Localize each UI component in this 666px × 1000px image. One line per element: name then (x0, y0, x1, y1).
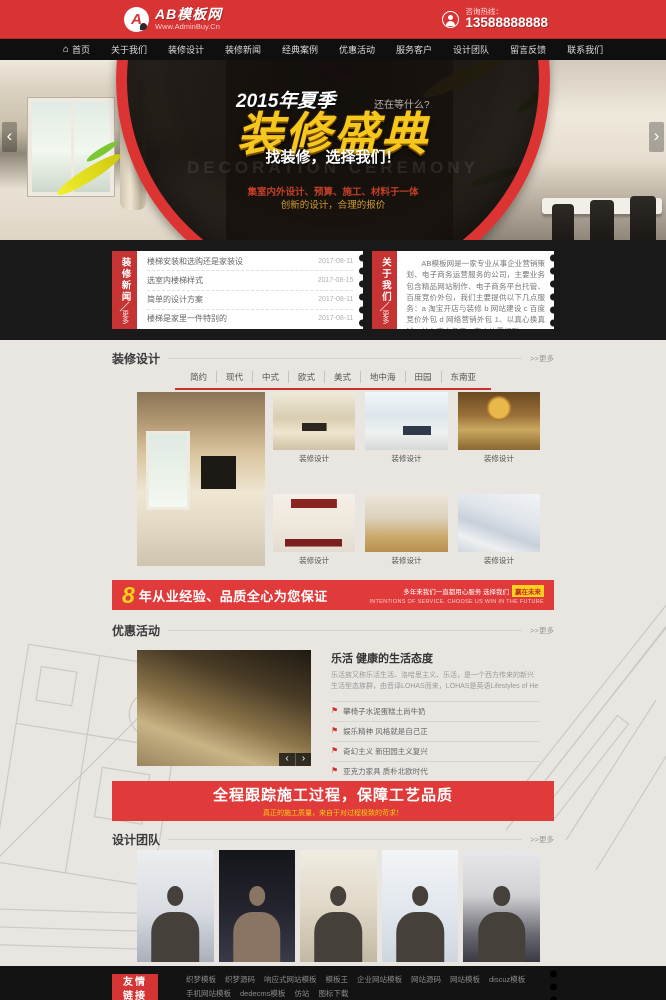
logo[interactable]: A AB模板网 Www.AdminBuy.Cn (124, 7, 222, 32)
offer-list-item[interactable]: ⚑ 娱乐精神 风格就是自己正 (331, 722, 540, 742)
offer-article-title[interactable]: 乐活 健康的生活态度 (331, 650, 540, 666)
experience-text: 年从业经验、品质全心为您保证 (139, 586, 328, 605)
friend-links: 织梦模板 织梦源码 响应式网站模板 模板王 企业网站模板 网站源码 网站模板 d… (186, 974, 546, 999)
gallery-item[interactable]: 装修设计 (458, 392, 540, 464)
about-tab-label: 关于我们 (378, 257, 392, 303)
about-text: AB模板网是一家专业从事企业营销策划、电子商务运营服务的公司，主要业务包含精品网… (397, 251, 554, 329)
person-silhouette (478, 886, 525, 962)
nav-item-design[interactable]: 装修设计 (157, 43, 214, 56)
nav-item-feedback[interactable]: 留言反馈 (500, 43, 557, 56)
footer-link[interactable]: dedecms模板 (240, 988, 285, 999)
footer-link[interactable]: 图标下载 (318, 988, 348, 999)
news-title: 简单的设计方案 (147, 294, 203, 305)
nav-item-contact[interactable]: 联系我们 (557, 43, 614, 56)
tab-pastoral[interactable]: 田园 (405, 371, 441, 383)
tab-european[interactable]: 欧式 (288, 371, 324, 383)
offer-list-item[interactable]: ⚑ 攀椅子水泥蛋糕土尚牛奶 (331, 702, 540, 722)
offer-list-item[interactable]: ⚑ 亚克力家具 质朴北欧时代 (331, 762, 540, 782)
logo-letter: A (131, 11, 142, 28)
carousel-next-icon[interactable]: › (649, 122, 664, 152)
footer-link[interactable]: 模板王 (326, 974, 349, 985)
perforation-decor (358, 252, 367, 328)
offer-prev-icon[interactable]: ‹ (279, 753, 295, 766)
footer-link[interactable]: 仿站 (294, 988, 309, 999)
hero-services-line: 集室内外设计、预算、施工、材料于一体 (0, 184, 666, 198)
offers-block: ‹ › 乐活 健康的生活态度 乐活族又称乐活生活、洛哈思主义、乐活，是一个西方传… (137, 650, 540, 768)
flag-icon: ⚑ (331, 747, 338, 755)
footer-link[interactable]: 织梦模板 (186, 974, 216, 985)
nav-item-clients[interactable]: 服务客户 (386, 43, 443, 56)
news-row[interactable]: 楼梯是家里一件特别的 2017-08-11 (147, 310, 353, 328)
person-silhouette (396, 886, 443, 962)
footer-link[interactable]: 织梦源码 (225, 974, 255, 985)
top-header: A AB模板网 Www.AdminBuy.Cn 咨询热线： 1358888888… (0, 0, 666, 38)
hotline-number: 13588888888 (465, 16, 548, 31)
news-date: 2017-08-11 (318, 258, 353, 265)
experience-years: 8 (122, 584, 135, 607)
hero-pricing-line: 创新的设计，合理的报价 (0, 197, 666, 211)
news-date: 2017-08-15 (318, 277, 354, 284)
news-panel: 装修新闻 更多 楼梯安装和选购还是家装设 2017-08-11 选室内楼梯样式 … (112, 251, 363, 329)
process-banner-subtitle: 真正的施工质量，来自于对过程极致的苛求！ (263, 808, 403, 818)
experience-banner: 8 年从业经验、品质全心为您保证 多年来我们一直都用心服务 选择我们 赢在未来 … (112, 580, 554, 610)
home-icon: ⌂ (63, 45, 69, 55)
offer-image[interactable]: ‹ › (137, 650, 311, 766)
footer-link[interactable]: 企业网站模板 (357, 974, 402, 985)
nav-item-offers[interactable]: 优惠活动 (329, 43, 386, 56)
offer-body: 乐活 健康的生活态度 乐活族又称乐活生活、洛哈思主义、乐活，是一个西方传来的新兴… (331, 650, 540, 768)
offer-article-text: 乐活族又称乐活生活、洛哈思主义、乐活，是一个西方传来的新兴生活型态族群，由音译L… (331, 671, 540, 693)
perforation-decor (549, 968, 558, 1000)
news-vertical-tab: 装修新闻 更多 (112, 251, 137, 329)
gallery-caption[interactable]: 装修设计 (365, 453, 447, 464)
footer-link[interactable]: 响应式网站模板 (264, 974, 317, 985)
experience-right: 多年来我们一直都用心服务 选择我们 赢在未来 INTENTIONS OF SER… (369, 585, 544, 605)
news-title: 楼梯安装和选购还是家装设 (147, 256, 243, 267)
tab-modern[interactable]: 现代 (216, 371, 252, 383)
news-date: 2017-08-11 (318, 296, 353, 303)
team-section-head: 设计团队 >>更多 (112, 831, 554, 848)
news-date: 2017-08-11 (318, 315, 353, 322)
logo-subtitle: Www.AdminBuy.Cn (155, 22, 222, 31)
divider-line (168, 630, 522, 631)
service-slogan-en: INTENTIONS OF SERVICE. CHOOSE US WIN IN … (369, 599, 544, 605)
process-banner-title: 全程跟踪施工过程，保障工艺品质 (213, 784, 453, 805)
footer-link[interactable]: 网站源码 (411, 974, 441, 985)
team-section-title: 设计团队 (112, 831, 160, 848)
gallery-caption[interactable]: 装修设计 (458, 555, 540, 566)
person-silhouette (315, 886, 362, 962)
main-nav: ⌂首页 关于我们 装修设计 装修新闻 经典案例 优惠活动 服务客户 设计团队 留… (0, 38, 666, 60)
offers-section-head: 优惠活动 >>更多 (112, 622, 554, 639)
process-banner: 全程跟踪施工过程，保障工艺品质 真正的施工质量，来自于对过程极致的苛求！ (112, 781, 554, 821)
nav-item-team[interactable]: 设计团队 (443, 43, 500, 56)
person-silhouette (152, 886, 199, 962)
design-section-head: 装修设计 >>更多 (112, 350, 554, 367)
team-photo[interactable] (219, 850, 296, 962)
gallery-item[interactable]: 装修设计 (365, 494, 447, 566)
flag-icon: ⚑ (331, 727, 338, 735)
flag-icon: ⚑ (331, 767, 338, 775)
hotline: 咨询热线： 13588888888 (442, 7, 548, 31)
gallery-caption[interactable]: 装修设计 (273, 555, 355, 566)
page: A AB模板网 Www.AdminBuy.Cn 咨询热线： 1358888888… (0, 0, 666, 1000)
flag-icon: ⚑ (331, 707, 338, 715)
tab-american[interactable]: 美式 (324, 371, 360, 383)
team-photo[interactable] (300, 850, 377, 962)
logo-title: AB模板网 (155, 7, 222, 22)
gallery-image (365, 494, 447, 552)
design-gallery: 装修设计 装修设计 装修设计 装修设计 装修设计 装修设计 (137, 392, 540, 566)
gallery-image (273, 392, 355, 450)
offer-carousel-controls: ‹ › (279, 753, 311, 766)
divider-line (168, 839, 522, 840)
gallery-caption[interactable]: 装修设计 (458, 453, 540, 464)
offer-list: ⚑ 攀椅子水泥蛋糕土尚牛奶 ⚑ 娱乐精神 风格就是自己正 ⚑ 奇幻主义 新田园主… (331, 701, 540, 782)
person-headset-icon (442, 11, 459, 28)
logo-icon: A (124, 7, 149, 32)
about-more-link[interactable]: 更多 (380, 310, 390, 324)
offer-next-icon[interactable]: › (295, 753, 311, 766)
person-silhouette (233, 886, 280, 962)
gallery-caption[interactable]: 装修设计 (365, 555, 447, 566)
news-title: 楼梯是家里一件特别的 (147, 313, 227, 324)
gallery-item[interactable]: 装修设计 (365, 392, 447, 464)
nav-item-cases[interactable]: 经典案例 (272, 43, 329, 56)
footer-link[interactable]: 手机网站模板 (186, 988, 231, 999)
team-more-link[interactable]: >>更多 (530, 834, 554, 845)
gallery-image (365, 392, 447, 450)
news-more-link[interactable]: 更多 (120, 310, 130, 324)
hero-subtitle: 找装修，选择我们！ (0, 146, 666, 167)
team-photo[interactable] (463, 850, 540, 962)
gallery-caption[interactable]: 装修设计 (273, 453, 355, 464)
offers-more-link[interactable]: >>更多 (530, 625, 554, 636)
friend-links-tab: 友情 链接 (112, 974, 158, 1000)
future-badge: 赢在未来 (512, 585, 544, 597)
gallery-item[interactable]: 装修设计 (273, 494, 355, 566)
news-tab-label: 装修新闻 (118, 257, 132, 303)
team-photo[interactable] (137, 850, 214, 962)
nav-item-news[interactable]: 装修新闻 (214, 43, 271, 56)
news-title: 选室内楼梯样式 (147, 275, 203, 286)
news-card: 楼梯安装和选购还是家装设 2017-08-11 选室内楼梯样式 2017-08-… (137, 251, 363, 329)
about-panel: 关于我们 更多 AB模板网是一家专业从事企业营销策划、电子商务运营服务的公司，主… (372, 251, 554, 329)
service-slogan: 多年来我们一直都用心服务 选择我们 (403, 586, 509, 596)
nav-item-about[interactable]: 关于我们 (100, 43, 157, 56)
tab-minimal[interactable]: 简约 (181, 371, 216, 383)
gallery-grid: 装修设计 装修设计 装修设计 装修设计 装修设计 装修设计 (273, 392, 540, 566)
gallery-image (273, 494, 355, 552)
tab-southeast-asia[interactable]: 东南亚 (441, 371, 486, 383)
design-tabs: 简约 现代 中式 欧式 美式 地中海 田园 东南亚 (0, 367, 666, 390)
tab-mediterranean[interactable]: 地中海 (360, 371, 405, 383)
footer-link[interactable]: discuz模板 (489, 974, 525, 985)
perforation-decor (549, 252, 558, 328)
offer-list-item[interactable]: ⚑ 奇幻主义 新田园主义复兴 (331, 742, 540, 762)
footer-link[interactable]: 网站模板 (450, 974, 480, 985)
gallery-image (458, 494, 540, 552)
divider-line (168, 358, 522, 359)
tab-chinese[interactable]: 中式 (252, 371, 288, 383)
news-row[interactable]: 楼梯安装和选购还是家装设 2017-08-11 (147, 252, 353, 271)
team-row (137, 850, 540, 962)
about-card: AB模板网是一家专业从事企业营销策划、电子商务运营服务的公司，主要业务包含精品网… (397, 251, 554, 329)
footer: 友情 链接 织梦模板 织梦源码 响应式网站模板 模板王 企业网站模板 网站源码 … (0, 966, 666, 1000)
design-section-title: 装修设计 (112, 350, 160, 367)
news-row[interactable]: 选室内楼梯样式 2017-08-15 (147, 271, 353, 290)
news-about-band: 装修新闻 更多 楼梯安装和选购还是家装设 2017-08-11 选室内楼梯样式 … (0, 240, 666, 340)
carousel-prev-icon[interactable]: ‹ (2, 122, 17, 152)
team-photo[interactable] (382, 850, 459, 962)
news-list: 楼梯安装和选购还是家装设 2017-08-11 选室内楼梯样式 2017-08-… (137, 251, 363, 329)
gallery-item[interactable]: 装修设计 (458, 494, 540, 566)
news-row[interactable]: 简单的设计方案 2017-08-11 (147, 291, 353, 310)
gallery-image-large[interactable] (137, 392, 265, 566)
nav-item-home[interactable]: ⌂首页 (52, 43, 100, 56)
gallery-image (458, 392, 540, 450)
hero-banner: 2015年夏季 还在等什么? 装修盛典 DECORATION CEREMONY … (0, 60, 666, 240)
offers-section-title: 优惠活动 (112, 622, 160, 639)
about-vertical-tab: 关于我们 更多 (372, 251, 397, 329)
design-more-link[interactable]: >>更多 (530, 353, 554, 364)
gallery-item[interactable]: 装修设计 (273, 392, 355, 464)
